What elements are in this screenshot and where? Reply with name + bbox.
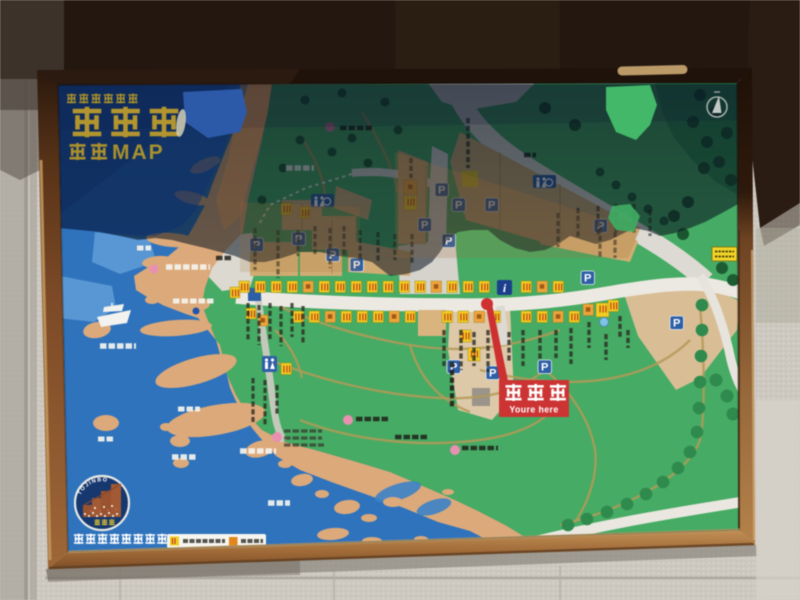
svg-text:P: P (673, 318, 681, 330)
svg-text:P: P (584, 273, 592, 285)
svg-text:P: P (489, 368, 497, 380)
svg-text:MAP: MAP (112, 141, 165, 164)
svg-text:Youre here: Youre here (509, 405, 558, 415)
svg-text:P: P (541, 362, 549, 374)
